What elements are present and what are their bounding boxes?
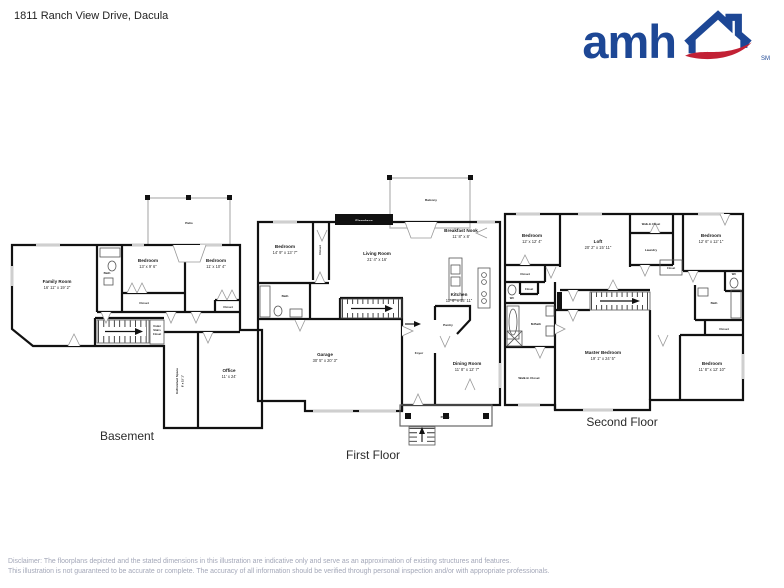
room-label-patio: Patio [185,221,193,225]
room-label-wc-left: WC [510,296,515,300]
svg-text:12' 6" x 12' 1": 12' 6" x 12' 1" [699,239,724,244]
house-roof-outline [687,15,750,43]
room-label-balcony: Balcony [425,198,437,202]
balcony-post [468,175,473,180]
svg-text:16' 11" x 19' 2": 16' 11" x 19' 2" [44,285,71,290]
room-label-bedroom-tr: Bedroom [701,233,721,238]
room-label-breakfast: Breakfast Nook [444,228,478,233]
room-label-closet-mid: Closet [667,266,675,270]
room-label-unfinished: Unfinished Space [175,368,179,394]
room-label-walkin-bottom: Walk-In Closet [518,376,539,380]
room-label-closet-right: Closet [719,327,728,331]
second-floor-plan: Bedroom 12' x 12' 4" Loft 20' 2" x 15' 1… [498,194,748,430]
patio-post [145,195,150,200]
disclaimer-line1: Disclaimer: The floorplans depicted and … [8,557,549,568]
room-label-closet-left2: Closet [525,287,533,291]
second-floor-label: Second Floor [586,415,657,429]
basement-bath-fixtures [100,248,120,285]
logo-trademark: SM [761,56,770,62]
svg-text:20' 2" x 15' 11": 20' 2" x 15' 11" [585,245,612,250]
room-label-wc-right: WC [732,272,737,276]
room-label-pantry: Pantry [443,323,453,327]
room-label-porch: Porch [441,415,450,419]
svg-text:14' 9" x 13' 7": 14' 9" x 13' 7" [273,250,298,255]
disclaimer-line2: This illustration is not guaranteed to b… [8,567,549,578]
first-bath-fixtures [260,286,302,317]
balcony-post [387,175,392,180]
svg-text:11' x 24': 11' x 24' [222,374,237,379]
room-label-mbath: M.Bath [531,322,541,326]
kitchen-counter [478,268,490,308]
first-doors [295,222,487,405]
room-label-walkin-top: Walk-In Closet [642,222,661,226]
svg-text:11' 8" x 12' 7": 11' 8" x 12' 7" [455,367,480,372]
amh-logo: amh SM [582,4,770,62]
patio-post [227,195,232,200]
room-label-bath-right: Bath [711,301,718,305]
room-label-closet-left: Closet [520,272,529,276]
room-label-loft: Loft [594,239,603,244]
entry-steps [409,427,435,445]
floorplan-page: { "header": { "address": "1811 Ranch Vie… [0,0,784,588]
room-label-living: Living Room [363,251,391,256]
room-label-dining: Dining Room [453,361,482,366]
room-label-bedroom-right: Bedroom [206,258,226,263]
room-label-foyer: Foyer [415,351,424,355]
room-label-bedroom-left: Bedroom [138,258,158,263]
first-stairs [341,299,421,328]
svg-text:30' 5" x 20' 3": 30' 5" x 20' 3" [313,358,338,363]
room-label-bath: Bath [104,271,111,275]
svg-text:11' 6" x 15' 11": 11' 6" x 15' 11" [446,298,473,303]
disclaimer: Disclaimer: The floorplans depicted and … [8,557,549,578]
room-label-closet: Closet [318,245,322,254]
room-label-family: Family Room [43,279,72,284]
porch: Porch [400,405,492,426]
basement-interior-walls [95,245,240,428]
svg-text:13' x 9' 6": 13' x 9' 6" [139,264,157,269]
room-label-office: Office [222,368,235,373]
room-label-garage: Garage [317,352,333,357]
basement-plan: Patio Under Stairs Closet [8,186,273,451]
property-address: 1811 Ranch View Drive, Dacula [14,10,168,22]
room-label-bedroom: Bedroom [275,244,295,249]
svg-text:11' 8" x 12' 10": 11' 8" x 12' 10" [699,367,726,372]
svg-text:Stairs: Stairs [153,328,161,332]
amh-house-icon [676,4,760,62]
room-label-kitchen: Kitchen [451,292,468,297]
amh-logo-text: amh [582,23,676,62]
svg-text:21' 4" x 16': 21' 4" x 16' [367,257,387,262]
patio-post [186,195,191,200]
room-label-closet-left: Closet [139,301,148,305]
basement-stairs [97,320,149,343]
basement-floor-label: Basement [100,429,154,443]
room-label-under-stairs: Under [153,324,161,328]
svg-text:19' 1" x 24' 5": 19' 1" x 24' 5" [591,356,616,361]
room-label-master: Master Bedroom [585,350,621,355]
basement-outer-walls [12,245,262,428]
svg-text:11' x 10' 4": 11' x 10' 4" [206,264,226,269]
svg-text:11' 8" x 8': 11' 8" x 8' [452,234,469,239]
first-floor-label: First Floor [346,448,400,462]
room-label-closet-right: Closet [223,305,232,309]
under-stairs-closet-box [150,320,164,344]
bath-right-fixtures [698,278,741,318]
room-label-bedroom-tl: Bedroom [522,233,542,238]
svg-text:Closet: Closet [153,332,161,336]
svg-text:6' x 15' 1": 6' x 15' 1" [181,374,185,387]
room-label-laundry: Laundry [645,248,657,252]
svg-text:12' x 12' 4": 12' x 12' 4" [522,239,542,244]
room-label-bedroom-br: Bedroom [702,361,722,366]
first-floor-plan: Balcony Fireplace [255,168,505,458]
room-label-bath: Bath [282,294,289,298]
balcony-outline [390,178,470,228]
